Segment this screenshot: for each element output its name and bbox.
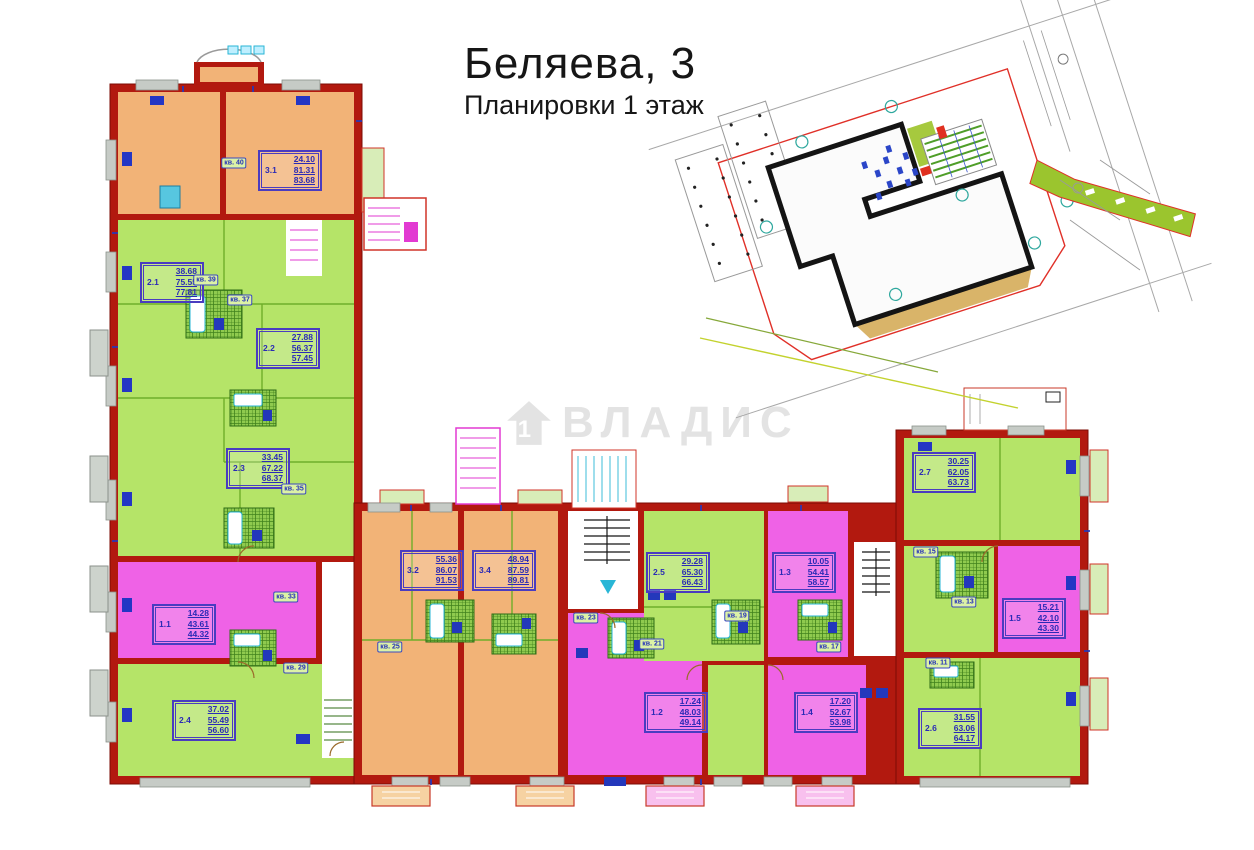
apartment-label-2.3: 33.452.367.2268.37: [226, 448, 290, 489]
labels-overlay: 24.103.181.3183.6838.682.175.5577.8127.8…: [0, 0, 1254, 850]
apartment-number-badge: кв. 40: [221, 158, 246, 169]
page-title: Беляева, 3: [464, 40, 704, 88]
apartment-label-1.5: 15.211.542.1043.30: [1002, 598, 1066, 639]
apartment-label-1.2: 17.241.248.0349.14: [644, 692, 708, 733]
title-block: Беляева, 3 Планировки 1 этаж: [464, 40, 704, 120]
apartment-number-badge: кв. 29: [283, 663, 308, 674]
page-subtitle: Планировки 1 этаж: [464, 90, 704, 120]
apartment-number-badge: кв. 25: [377, 642, 402, 653]
apartment-label-2.6: 31.552.663.0664.17: [918, 708, 982, 749]
floor-plan-page: Беляева, 3 Планировки 1 этаж 1 ВЛАДИС: [0, 0, 1254, 850]
apartment-number-badge: кв. 35: [281, 484, 306, 495]
apartment-number-badge: кв. 19: [724, 611, 749, 622]
apartment-label-3.4: 48.943.487.5989.81: [472, 550, 536, 591]
apartment-number-badge: кв. 23: [573, 613, 598, 624]
apartment-number-badge: кв. 33: [273, 592, 298, 603]
apartment-number-badge: кв. 37: [227, 295, 252, 306]
apartment-label-2.2: 27.882.256.3757.45: [256, 328, 320, 369]
apartment-label-2.5: 29.282.565.3066.43: [646, 552, 710, 593]
apartment-label-2.7: 30.252.762.0563.73: [912, 452, 976, 493]
apartment-label-1.3: 10.051.354.4158.57: [772, 552, 836, 593]
apartment-number-badge: кв. 11: [925, 658, 950, 669]
apartment-number-badge: кв. 39: [193, 275, 218, 286]
apartment-number-badge: кв. 15: [913, 547, 938, 558]
apartment-label-1.4: 17.201.452.6753.98: [794, 692, 858, 733]
apartment-label-2.4: 37.022.455.4956.60: [172, 700, 236, 741]
apartment-label-1.1: 14.281.143.6144.32: [152, 604, 216, 645]
apartment-label-3.2: 55.363.286.0791.53: [400, 550, 464, 591]
apartment-number-badge: кв. 13: [951, 597, 976, 608]
apartment-number-badge: кв. 21: [639, 639, 664, 650]
apartment-number-badge: кв. 17: [816, 642, 841, 653]
apartment-label-3.1: 24.103.181.3183.68: [258, 150, 322, 191]
